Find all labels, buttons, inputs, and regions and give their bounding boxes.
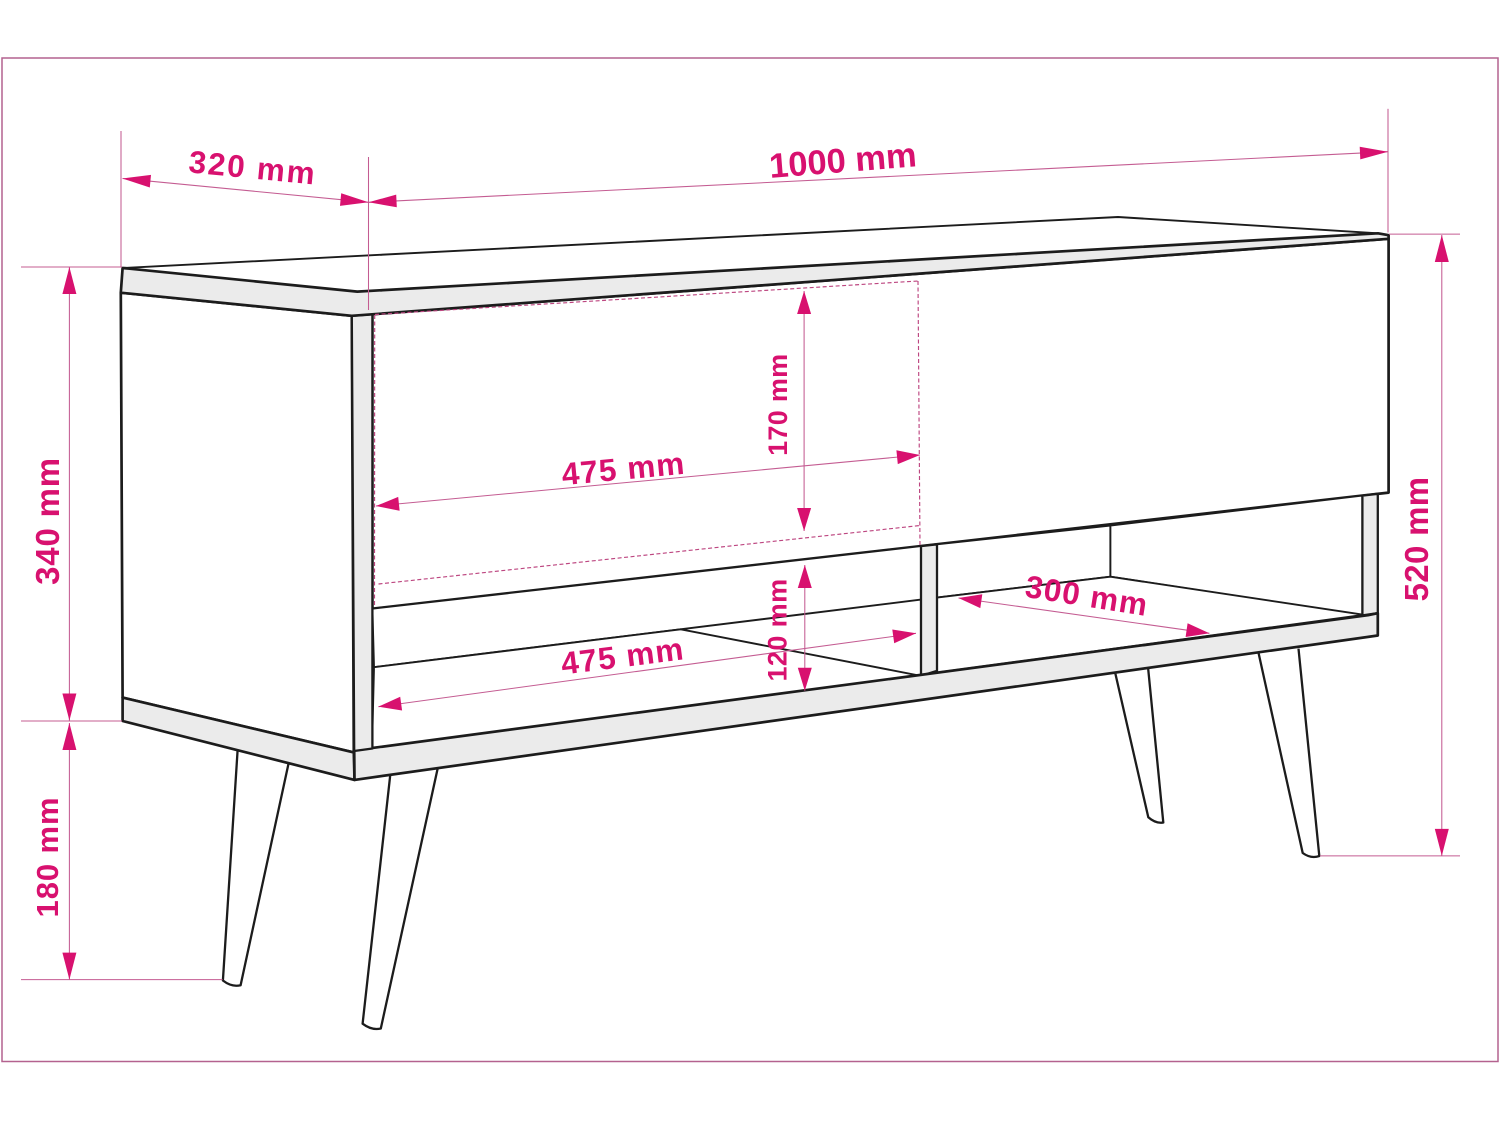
svg-text:520 mm: 520 mm <box>1398 477 1435 602</box>
svg-text:120 mm: 120 mm <box>762 579 792 682</box>
svg-text:340 mm: 340 mm <box>29 457 66 585</box>
svg-text:170 mm: 170 mm <box>763 354 793 456</box>
svg-text:180 mm: 180 mm <box>30 797 65 918</box>
